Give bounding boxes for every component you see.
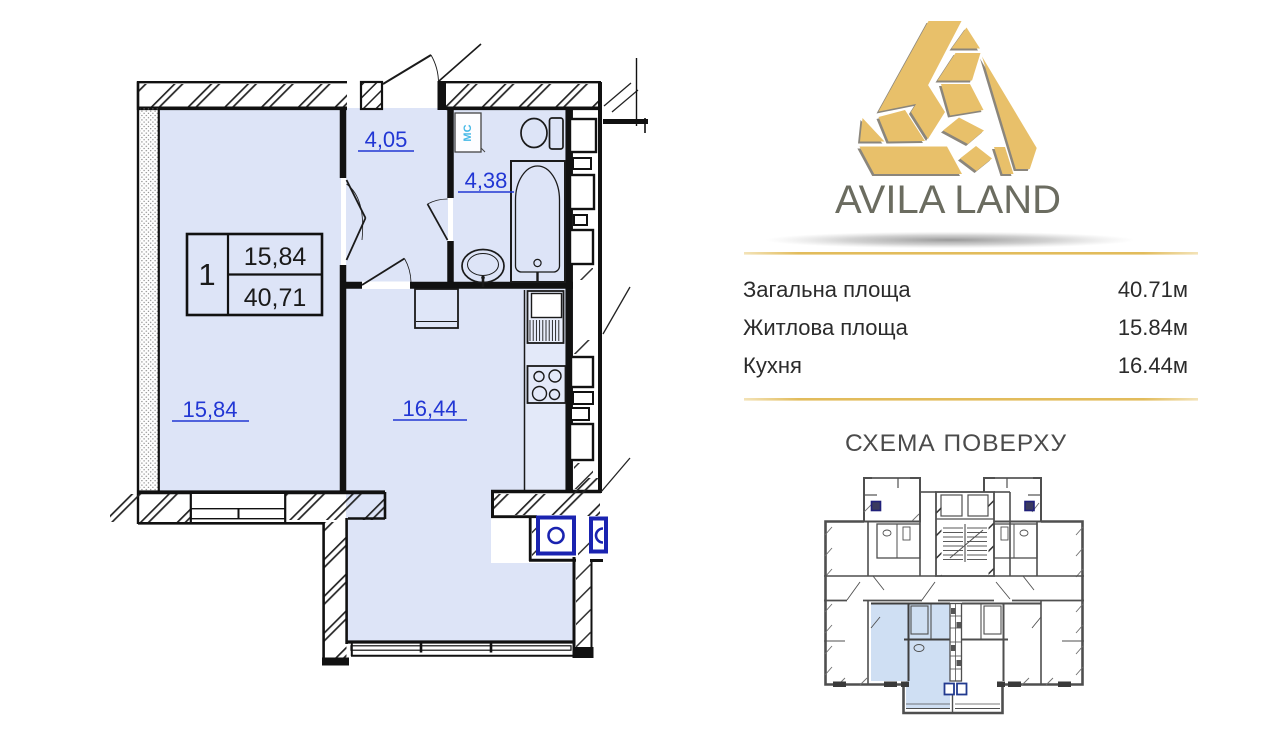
svg-text:СХЕМА ПОВЕРХУ: СХЕМА ПОВЕРХУ bbox=[845, 430, 1067, 457]
svg-text:40,71: 40,71 bbox=[244, 284, 307, 312]
svg-text:AVILA LAND: AVILA LAND bbox=[835, 178, 1061, 222]
svg-text:1: 1 bbox=[198, 257, 215, 292]
svg-text:МС: МС bbox=[462, 124, 474, 141]
svg-text:Кухня: Кухня bbox=[743, 353, 802, 378]
svg-text:4,05: 4,05 bbox=[365, 127, 408, 152]
svg-text:4,38: 4,38 bbox=[465, 168, 508, 193]
svg-text:16.44м: 16.44м bbox=[1118, 353, 1188, 378]
svg-text:15.84м: 15.84м bbox=[1118, 315, 1188, 340]
svg-text:15,84: 15,84 bbox=[244, 243, 307, 271]
svg-text:15,84: 15,84 bbox=[182, 397, 237, 422]
svg-text:16,44: 16,44 bbox=[402, 396, 457, 421]
svg-text:40.71м: 40.71м bbox=[1118, 277, 1188, 302]
svg-text:Житлова площа: Житлова площа bbox=[743, 315, 909, 340]
svg-text:Загальна площа: Загальна площа bbox=[743, 277, 911, 302]
